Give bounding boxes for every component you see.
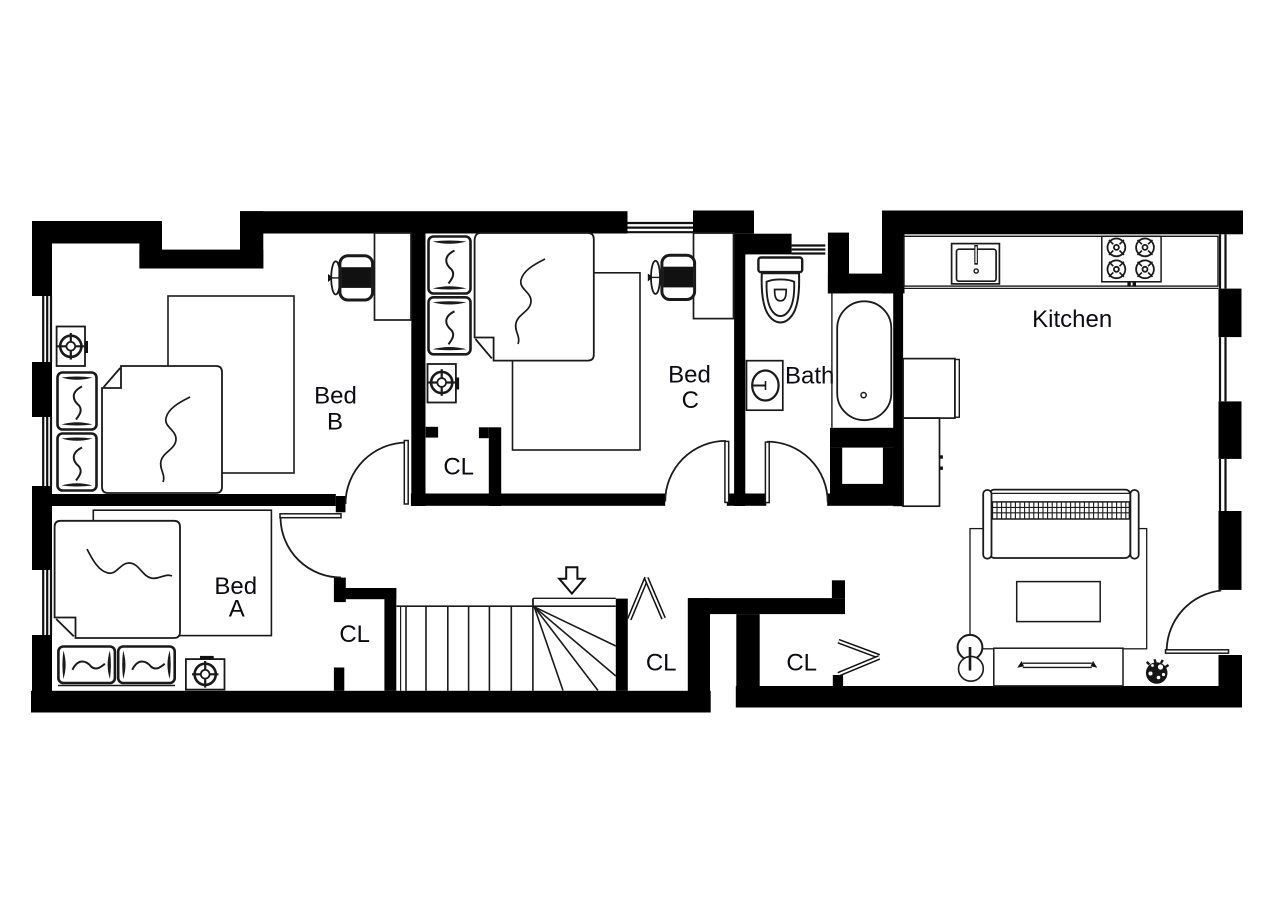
svg-text:CL: CL bbox=[646, 650, 677, 677]
svg-text:CL: CL bbox=[786, 650, 817, 677]
svg-text:Bed: Bed bbox=[314, 383, 357, 410]
svg-text:CL: CL bbox=[339, 621, 370, 648]
svg-text:Bath: Bath bbox=[785, 363, 834, 390]
svg-text:A: A bbox=[229, 596, 245, 623]
svg-text:Kitchen: Kitchen bbox=[1032, 306, 1112, 333]
svg-text:Bed: Bed bbox=[668, 362, 711, 389]
svg-text:C: C bbox=[682, 387, 699, 414]
svg-text:CL: CL bbox=[443, 454, 474, 481]
svg-text:B: B bbox=[327, 409, 343, 436]
